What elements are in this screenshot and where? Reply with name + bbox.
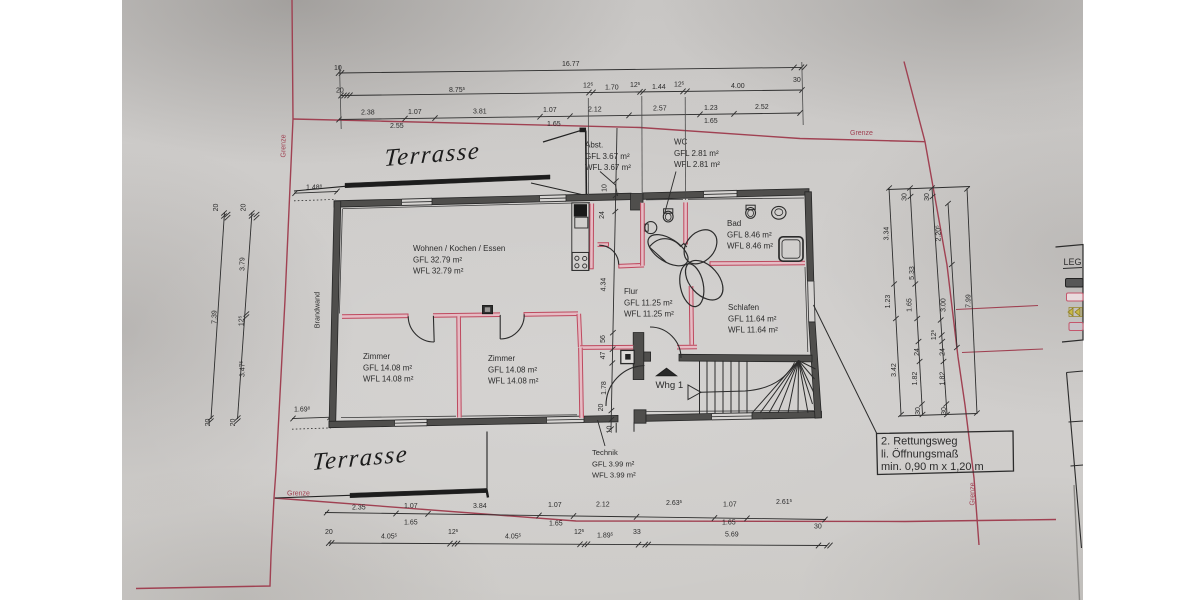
svg-text:8.755: 8.755 [449, 86, 466, 94]
svg-text:1.65: 1.65 [549, 521, 563, 528]
svg-text:2. Rettungsweg: 2. Rettungsweg [881, 436, 957, 448]
svg-text:Bad: Bad [727, 219, 741, 228]
svg-text:7.99: 7.99 [966, 294, 973, 308]
svg-text:Grenze: Grenze [850, 130, 873, 137]
svg-text:30: 30 [941, 407, 948, 415]
svg-text:2.52: 2.52 [755, 104, 769, 111]
svg-text:1.78: 1.78 [601, 381, 608, 395]
svg-text:30: 30 [902, 193, 909, 201]
svg-text:10: 10 [607, 426, 614, 434]
svg-text:30: 30 [915, 407, 922, 415]
svg-text:1.23: 1.23 [885, 295, 892, 309]
svg-text:1.44: 1.44 [652, 84, 666, 91]
svg-text:4.055: 4.055 [505, 533, 522, 541]
svg-text:16.77: 16.77 [562, 61, 580, 68]
svg-text:1.07: 1.07 [404, 503, 418, 510]
svg-text:1.70: 1.70 [605, 85, 619, 92]
svg-text:1.65: 1.65 [722, 520, 736, 527]
svg-text:Technik: Technik [592, 448, 618, 457]
svg-text:125: 125 [583, 82, 594, 90]
svg-text:LEG: LEG [1064, 257, 1082, 267]
svg-text:GFL 3.67 m²: GFL 3.67 m² [585, 152, 630, 161]
svg-text:125: 125 [930, 329, 938, 340]
svg-text:30: 30 [814, 524, 822, 531]
svg-text:3.42: 3.42 [891, 363, 898, 377]
svg-text:Terrasse: Terrasse [384, 137, 482, 172]
svg-text:WFL 3.67 m²: WFL 3.67 m² [585, 163, 631, 172]
svg-text:56: 56 [600, 335, 607, 343]
svg-text:4.00: 4.00 [731, 83, 745, 90]
svg-text:1.65: 1.65 [704, 118, 718, 125]
svg-text:1.07: 1.07 [723, 502, 737, 509]
svg-text:GFL 32.79 m²: GFL 32.79 m² [413, 255, 462, 264]
svg-text:5.33: 5.33 [909, 266, 916, 280]
svg-text:WFL 8.46 m²: WFL 8.46 m² [727, 242, 773, 251]
svg-text:1.65: 1.65 [907, 298, 914, 312]
svg-text:24: 24 [940, 348, 947, 356]
svg-text:1.82: 1.82 [940, 372, 947, 386]
svg-text:1.895: 1.895 [597, 532, 614, 540]
svg-text:li. Öffnungsmaß: li. Öffnungsmaß [881, 448, 959, 460]
svg-text:1.488: 1.488 [306, 184, 323, 192]
svg-text:WFL 32.79 m²: WFL 32.79 m² [413, 267, 464, 276]
svg-text:GFL 11.64 m²: GFL 11.64 m² [728, 314, 777, 323]
svg-text:125: 125 [630, 81, 641, 89]
svg-text:24: 24 [599, 211, 606, 219]
svg-text:Wohnen / Kochen / Essen: Wohnen / Kochen / Essen [413, 244, 505, 253]
svg-text:20: 20 [598, 404, 605, 412]
svg-text:2.35: 2.35 [352, 505, 366, 512]
svg-text:125: 125 [674, 81, 685, 89]
svg-text:2.205: 2.205 [935, 225, 943, 242]
svg-text:WFL 3.99 m²: WFL 3.99 m² [592, 471, 636, 480]
svg-text:1.07: 1.07 [548, 502, 562, 509]
svg-text:1.82: 1.82 [912, 372, 919, 386]
svg-text:20: 20 [230, 419, 237, 427]
svg-text:GFL 8.46 m²: GFL 8.46 m² [727, 230, 772, 239]
svg-text:GFL 11.25 m²: GFL 11.25 m² [624, 298, 673, 307]
svg-text:20: 20 [213, 204, 220, 212]
svg-text:Zimmer: Zimmer [488, 354, 515, 363]
svg-text:Whg 1: Whg 1 [656, 380, 684, 391]
svg-text:3.79: 3.79 [240, 257, 247, 271]
svg-text:Grenze: Grenze [281, 134, 288, 157]
svg-text:4.34: 4.34 [601, 278, 608, 292]
svg-text:1.65: 1.65 [404, 520, 418, 527]
svg-text:20: 20 [205, 419, 212, 427]
svg-text:WFL 14.08 m²: WFL 14.08 m² [363, 375, 414, 384]
svg-text:3.81: 3.81 [473, 108, 487, 115]
svg-text:24: 24 [914, 348, 921, 356]
svg-text:2.38: 2.38 [361, 110, 375, 117]
svg-text:3.00: 3.00 [941, 298, 948, 312]
svg-text:47: 47 [600, 352, 607, 360]
svg-text:2.12: 2.12 [588, 107, 602, 114]
svg-text:Grenze: Grenze [970, 482, 977, 505]
svg-text:2.615: 2.615 [776, 498, 793, 506]
svg-text:Abst.: Abst. [585, 141, 603, 150]
svg-text:Zimmer: Zimmer [363, 352, 390, 361]
svg-text:2.12: 2.12 [596, 502, 610, 509]
svg-text:GFL 2.81 m²: GFL 2.81 m² [674, 149, 719, 158]
svg-text:20: 20 [325, 529, 333, 536]
svg-text:1.07: 1.07 [543, 107, 557, 114]
svg-text:GFL 14.08 m²: GFL 14.08 m² [488, 365, 537, 374]
svg-text:3.475: 3.475 [239, 360, 247, 377]
svg-text:10: 10 [602, 184, 609, 192]
svg-text:3.34: 3.34 [884, 227, 891, 241]
svg-text:WFL 2.81 m²: WFL 2.81 m² [674, 160, 720, 169]
svg-text:3.84: 3.84 [473, 503, 487, 510]
svg-text:GFL 14.08 m²: GFL 14.08 m² [363, 363, 412, 372]
svg-text:1.698: 1.698 [294, 406, 311, 414]
svg-text:min. 0,90 m x 1,20 m: min. 0,90 m x 1,20 m [881, 461, 984, 473]
svg-text:2.55: 2.55 [390, 123, 404, 130]
svg-text:GFL 3.99 m²: GFL 3.99 m² [592, 459, 635, 468]
svg-text:30: 30 [924, 193, 931, 201]
svg-text:1.23: 1.23 [704, 105, 718, 112]
svg-text:1.65: 1.65 [547, 121, 561, 128]
svg-text:2.635: 2.635 [666, 499, 683, 507]
svg-text:30: 30 [793, 77, 801, 84]
svg-text:1.07: 1.07 [408, 109, 422, 116]
svg-text:5.69: 5.69 [725, 532, 739, 539]
svg-text:125: 125 [574, 528, 585, 536]
svg-text:125: 125 [448, 528, 459, 536]
svg-text:33: 33 [633, 529, 641, 536]
svg-text:WFL 14.08 m²: WFL 14.08 m² [488, 377, 539, 386]
svg-text:Terrasse: Terrasse [312, 441, 409, 476]
svg-text:Flur: Flur [624, 287, 638, 296]
svg-text:2.57: 2.57 [653, 106, 667, 113]
svg-text:20: 20 [241, 204, 248, 212]
svg-text:7.39: 7.39 [212, 310, 219, 324]
svg-text:WFL 11.64 m²: WFL 11.64 m² [728, 326, 778, 335]
svg-text:4.055: 4.055 [381, 533, 398, 541]
svg-text:WFL 11.25 m²: WFL 11.25 m² [624, 310, 674, 319]
svg-text:Schlafen: Schlafen [728, 303, 759, 312]
svg-text:10: 10 [334, 65, 342, 72]
svg-text:Brandwand: Brandwand [313, 292, 322, 328]
